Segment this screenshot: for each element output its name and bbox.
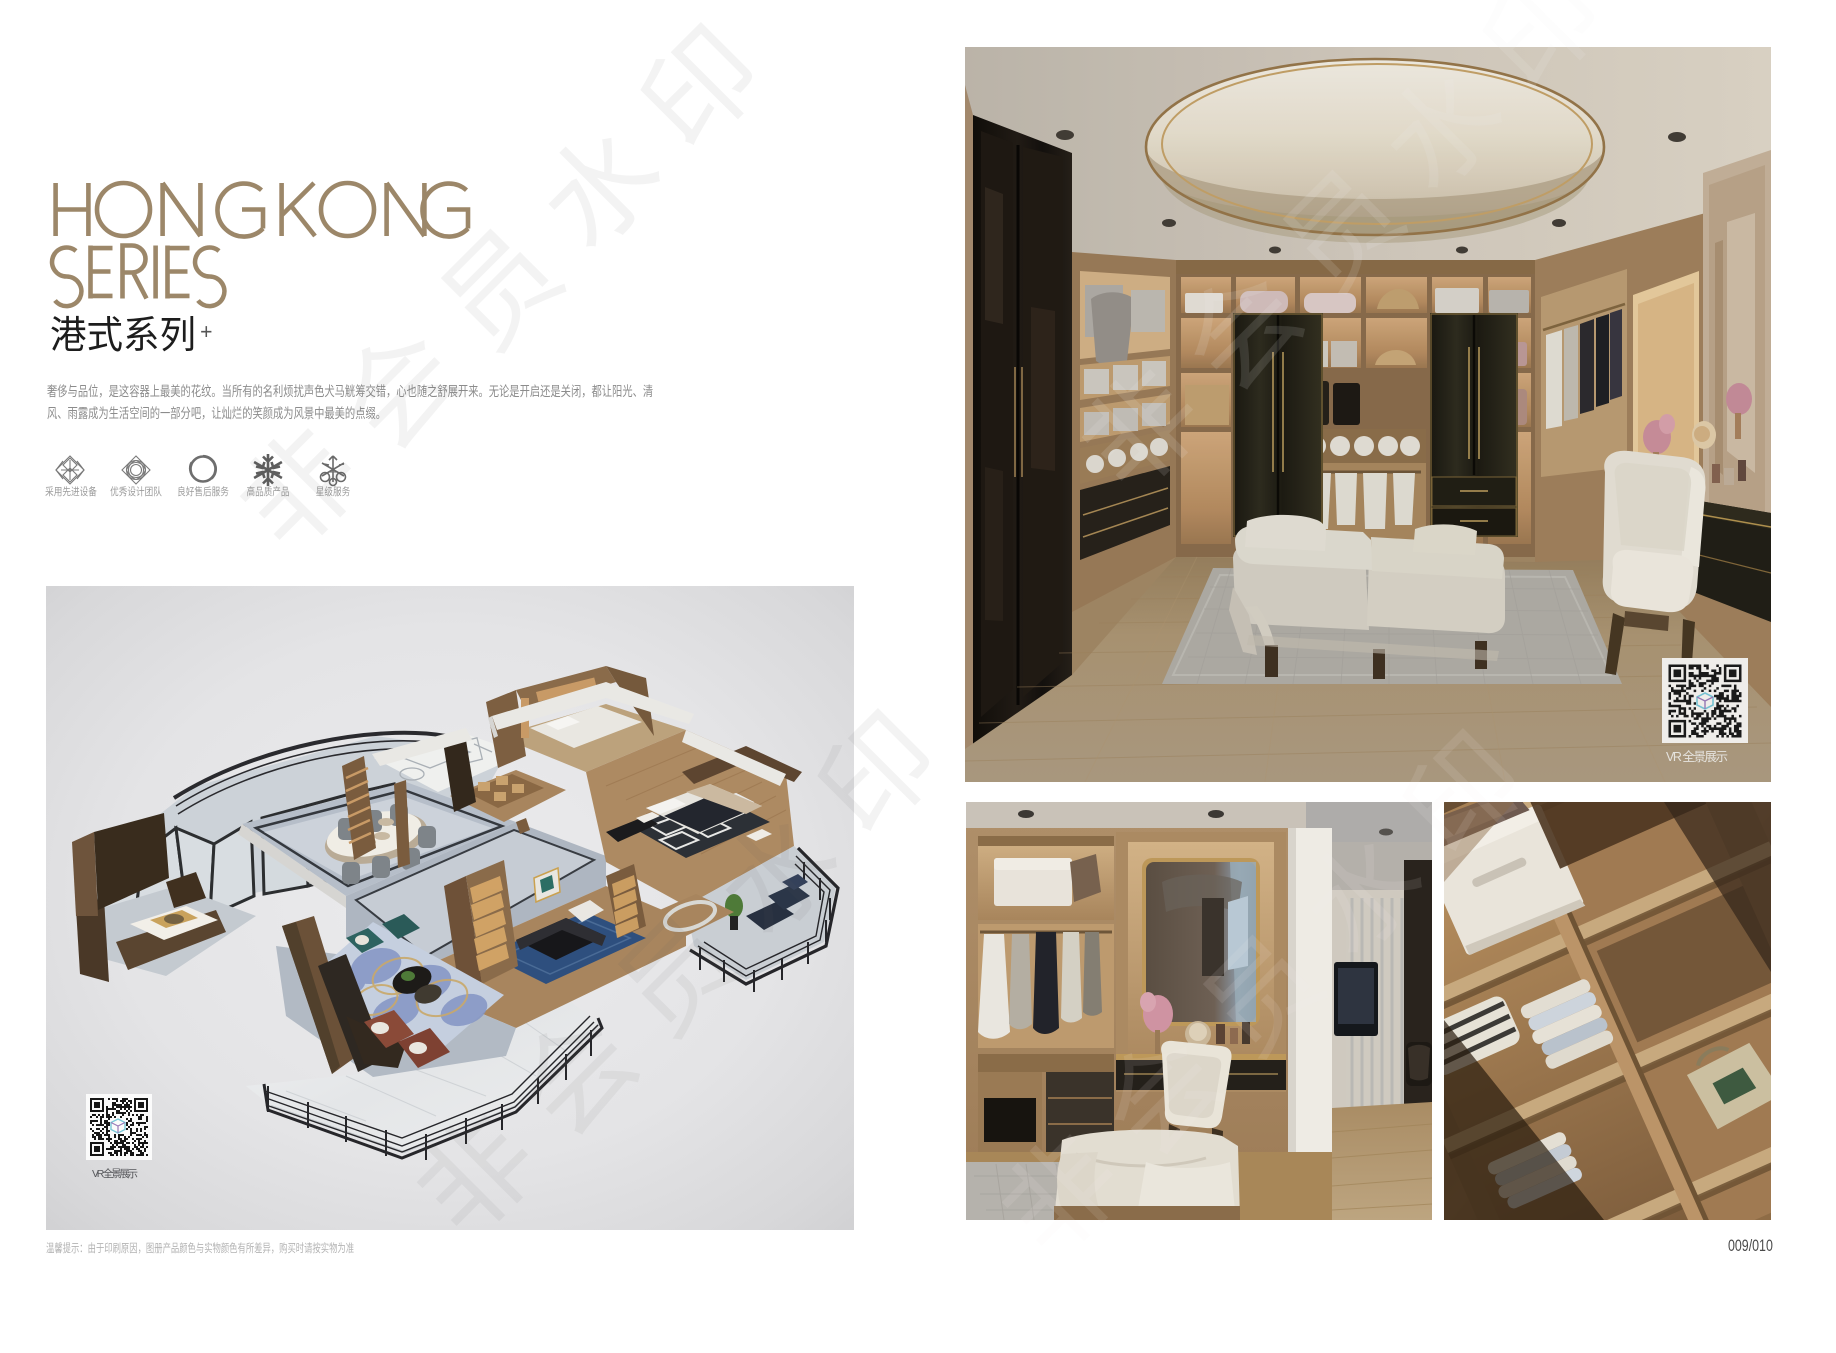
svg-text:VR 全景展示: VR 全景展示 xyxy=(92,1167,138,1180)
